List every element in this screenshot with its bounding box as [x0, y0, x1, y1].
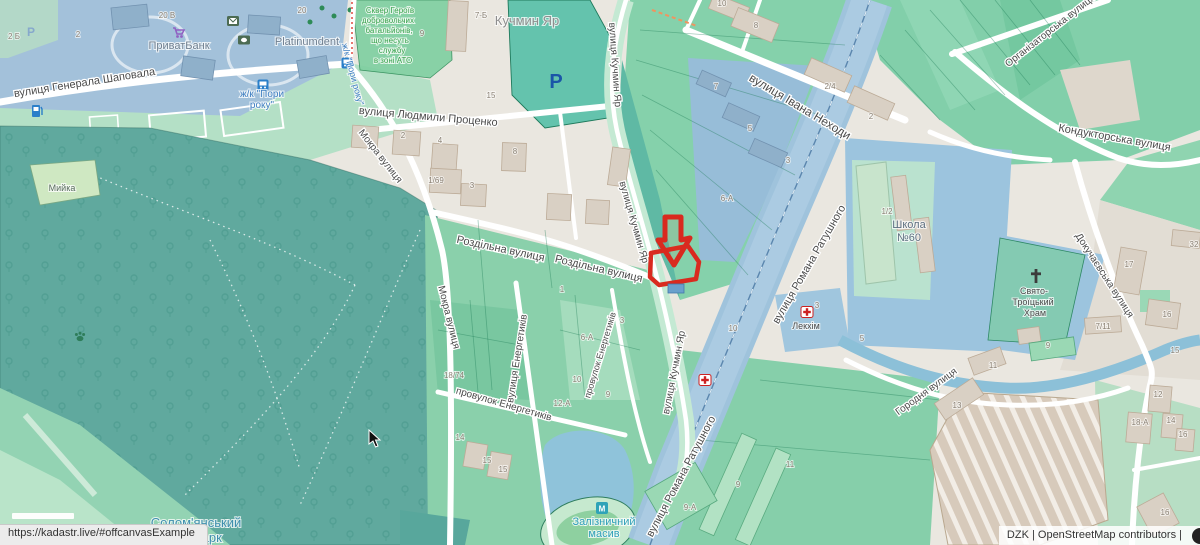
- area-label: №60: [897, 232, 921, 244]
- area-label: Залізничний: [573, 516, 636, 528]
- house-number: 9: [1046, 341, 1051, 350]
- house-number: 5: [748, 124, 753, 133]
- house-number: 15: [483, 456, 492, 465]
- area-label: Мийка: [49, 183, 76, 193]
- house-number: 2/4: [824, 82, 836, 91]
- house-number: 3: [786, 156, 791, 165]
- area-label: що несуть: [371, 36, 409, 45]
- status-url-bar: https://kadastr.live/#offcanvasExample: [0, 524, 208, 545]
- house-number: 2: [401, 131, 406, 140]
- house-number: 15: [487, 91, 496, 100]
- pharmacy-icon: [699, 375, 711, 386]
- house-number: 9-А: [684, 503, 697, 512]
- house-number: 10: [729, 324, 738, 333]
- house-number: 9: [736, 480, 741, 489]
- house-number: 3: [620, 316, 625, 325]
- house-number: 6-А: [581, 333, 594, 342]
- house-number: 16: [1161, 508, 1170, 517]
- house-number: 1/2: [881, 207, 893, 216]
- attribution-text[interactable]: DZK | OpenStreetMap contributors |: [1007, 529, 1182, 541]
- house-number: 2: [76, 30, 81, 39]
- house-number: 18-А: [1132, 418, 1150, 427]
- atm-icon: [238, 36, 250, 45]
- house-number: 13: [953, 401, 962, 410]
- area-label: в зоні АТО: [374, 56, 412, 65]
- house-number: 20: [298, 6, 307, 15]
- area-label: батальйонів,: [365, 26, 412, 35]
- icon-glyph: P: [549, 71, 562, 93]
- house-number: 2 Б: [8, 32, 20, 41]
- mail-icon: [227, 16, 239, 26]
- house-number: 3: [470, 181, 475, 190]
- parking-icon: P: [27, 25, 35, 39]
- house-number: 14: [456, 433, 465, 442]
- house-number: 5: [860, 334, 865, 343]
- icon-glyph: P: [27, 25, 35, 39]
- house-number: 8: [754, 21, 759, 30]
- house-number: 3: [815, 301, 820, 310]
- house-number: 16: [1163, 310, 1172, 319]
- house-number: 20 В: [159, 11, 175, 20]
- area-label: ПриватБанк: [148, 40, 209, 52]
- parking-icon: P: [549, 71, 562, 93]
- house-number: 11: [989, 361, 998, 370]
- house-number: 7/11: [1096, 322, 1112, 331]
- house-number: 9: [420, 29, 425, 38]
- house-number: 9: [606, 390, 611, 399]
- house-number: 4: [438, 136, 443, 145]
- house-number: 2: [869, 112, 874, 121]
- house-number: 10: [718, 0, 727, 8]
- attribution-badge-icon: [1192, 528, 1200, 544]
- area-label: Лекхім: [792, 321, 820, 331]
- house-number: 18/74: [444, 371, 465, 380]
- area-label: службу: [379, 46, 406, 55]
- pharmacy-icon: [801, 307, 813, 318]
- house-number: 16: [1179, 430, 1188, 439]
- house-number: 8: [513, 147, 518, 156]
- area-label: ж/к "Пори: [240, 89, 284, 100]
- house-number: 7-Б: [475, 11, 487, 20]
- area-label: Троїцький: [1012, 297, 1053, 307]
- attribution-bar[interactable]: DZK | OpenStreetMap contributors |: [999, 526, 1200, 545]
- house-number: 12: [1154, 390, 1163, 399]
- area-label: Храм: [1024, 308, 1046, 318]
- small-building: [668, 284, 684, 293]
- area-label: року": [250, 100, 275, 111]
- house-number: 6-А: [721, 194, 734, 203]
- scale-bar: [12, 513, 74, 519]
- area-label: Школа: [892, 219, 926, 231]
- metro-station-icon: М: [596, 502, 608, 514]
- area-label: добровольчих: [362, 16, 414, 25]
- area-label: Свято-: [1020, 286, 1048, 296]
- house-number: 12-А: [554, 399, 572, 408]
- house-number: 14: [1167, 416, 1176, 425]
- house-number: 11: [786, 460, 795, 469]
- area-label: Platinumdent: [275, 36, 339, 48]
- garage-complex: [930, 392, 1108, 545]
- house-number: 1: [560, 285, 565, 294]
- area-label: Кучмин Яр: [495, 13, 559, 28]
- house-number: 15: [499, 465, 508, 474]
- icon-glyph: М: [599, 505, 606, 514]
- house-number: 10: [573, 375, 582, 384]
- house-number: 17: [1125, 260, 1134, 269]
- area-label: Сквер Героїв: [366, 6, 414, 15]
- map-canvas[interactable]: PPМ вулиця Генерала Шаповалавулиця Людми…: [0, 0, 1200, 545]
- house-number: 15: [1171, 346, 1180, 355]
- house-number: 7: [714, 82, 719, 91]
- house-number: 32: [1190, 240, 1199, 249]
- area-label: масив: [588, 528, 619, 540]
- house-number: 1/69: [428, 176, 444, 185]
